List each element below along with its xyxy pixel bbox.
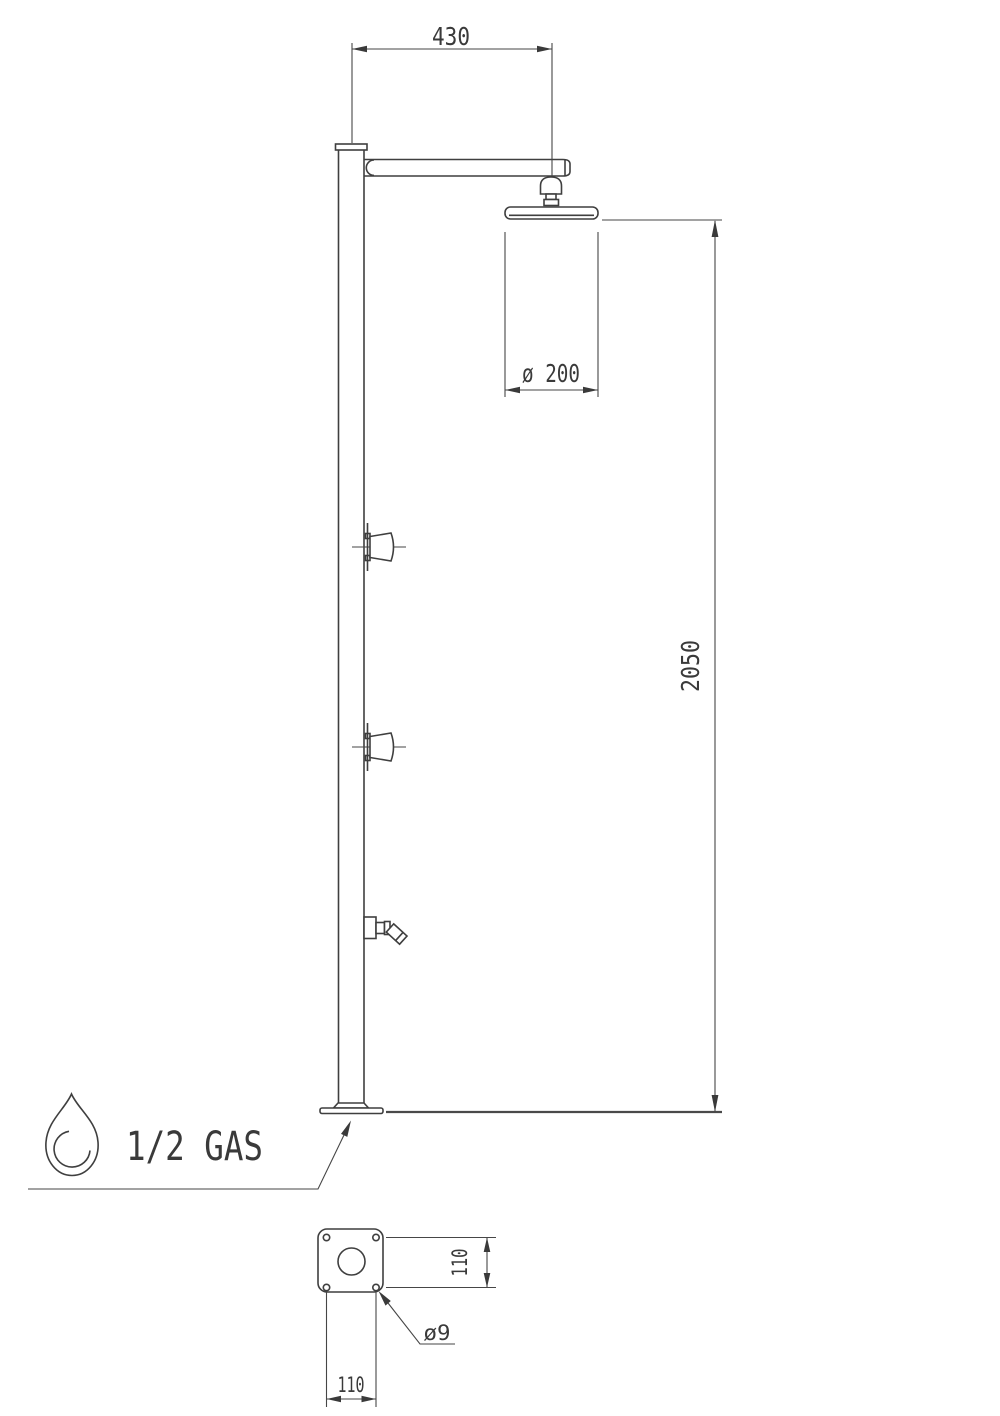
dimension-arm-length: 430 (352, 22, 552, 176)
gas-connection-callout: 1/2 GAS (28, 1094, 351, 1189)
base-flange (320, 1103, 722, 1114)
dimension-bolt-spacing-vertical: 110 (386, 1238, 496, 1288)
base-plate-top-view (318, 1229, 383, 1292)
dim-label-bolt-spacing-vertical: 110 (448, 1249, 472, 1277)
callout-hole-diameter: ø9 (379, 1291, 456, 1345)
water-drop-icon (46, 1094, 98, 1176)
dimension-head-diameter: ø 200 (505, 232, 598, 397)
shower-post (336, 144, 368, 1103)
dimension-bolt-spacing-horizontal: 110 (327, 1292, 377, 1407)
dim-label-bolt-spacing-horizontal: 110 (338, 1373, 365, 1397)
valve-bottom (352, 723, 406, 771)
shower-arm (364, 160, 570, 177)
shower-head (505, 207, 598, 219)
valve-top (352, 523, 406, 571)
gas-connection-label: 1/2 GAS (126, 1124, 263, 1170)
shower-head-joint (541, 177, 562, 206)
dim-label-hole-diameter: ø9 (424, 1321, 451, 1345)
dim-label-total-height: 2050 (676, 640, 705, 692)
dim-label-head-diameter: ø 200 (522, 359, 580, 388)
dimension-total-height: 2050 (602, 220, 722, 1112)
foot-spout (364, 917, 407, 944)
dim-label-arm-length: 430 (432, 22, 470, 51)
technical-drawing: 430 ø 200 2050 1/2 GAS (0, 0, 1000, 1416)
drawing-canvas: 430 ø 200 2050 1/2 GAS (0, 0, 1000, 1416)
